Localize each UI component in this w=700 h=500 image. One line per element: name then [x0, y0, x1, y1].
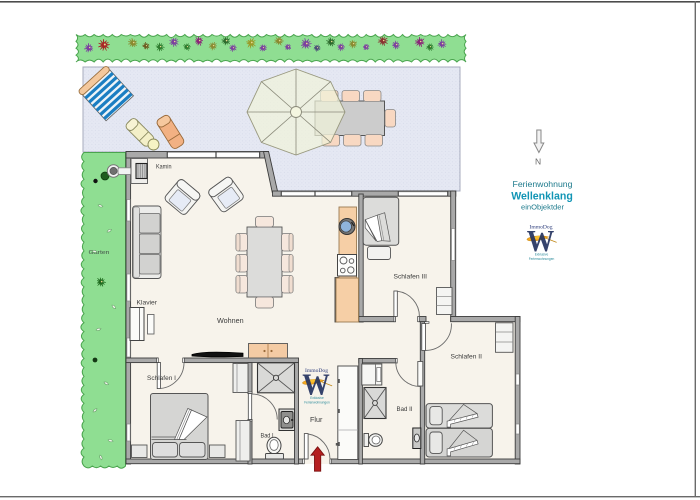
svg-text:Exklusive: Exklusive [535, 253, 549, 257]
svg-text:Klavier: Klavier [137, 300, 158, 307]
svg-text:Kamin: Kamin [156, 164, 172, 171]
svg-text:Ferienwohnung: Ferienwohnung [513, 179, 573, 189]
svg-text:Schlafen II: Schlafen II [451, 354, 483, 361]
svg-text:Wohnen: Wohnen [217, 316, 244, 325]
svg-text:Exklusive: Exklusive [310, 396, 324, 400]
svg-text:N: N [535, 157, 541, 167]
svg-text:Ferienwohnungen: Ferienwohnungen [529, 257, 555, 261]
svg-text:Ferienwohnungen: Ferienwohnungen [304, 401, 330, 405]
svg-text:Wellenklang: Wellenklang [511, 190, 573, 202]
svg-text:Schlafen III: Schlafen III [394, 274, 428, 281]
svg-text:Schlafen I: Schlafen I [147, 375, 176, 382]
svg-text:Flur: Flur [310, 415, 323, 424]
svg-text:Bad II: Bad II [397, 406, 413, 413]
svg-text:einObjektder: einObjektder [521, 202, 565, 211]
